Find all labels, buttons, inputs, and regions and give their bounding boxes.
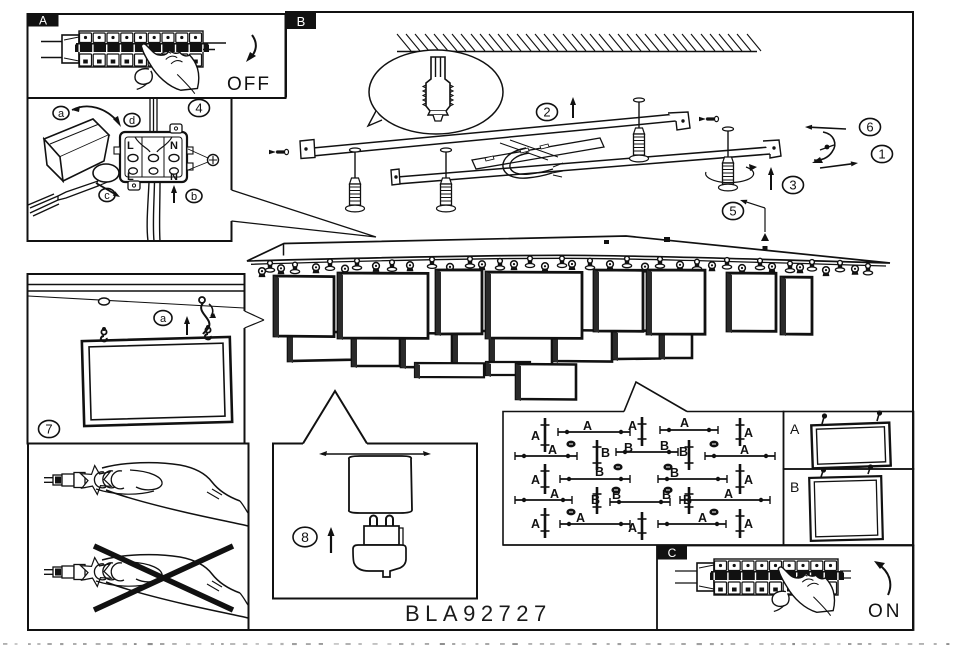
svg-text:B: B	[624, 441, 633, 455]
svg-text:A: A	[740, 443, 749, 457]
svg-text:3: 3	[789, 178, 796, 193]
svg-text:B: B	[790, 479, 799, 495]
svg-text:B: B	[297, 14, 306, 29]
svg-text:A: A	[583, 419, 592, 433]
svg-text:B: B	[595, 465, 604, 479]
svg-text:a: a	[160, 313, 167, 325]
svg-text:2: 2	[543, 105, 550, 120]
svg-text:A: A	[531, 517, 540, 531]
svg-text:a: a	[58, 108, 65, 120]
svg-text:OFF: OFF	[227, 74, 271, 95]
svg-text:A: A	[39, 14, 47, 28]
svg-text:B: B	[660, 439, 669, 453]
svg-text:d: d	[129, 115, 135, 127]
svg-text:B: B	[683, 493, 692, 507]
svg-text:A: A	[680, 416, 689, 430]
svg-text:A: A	[698, 511, 707, 525]
svg-text:b: b	[191, 191, 197, 203]
svg-text:A: A	[548, 443, 557, 457]
svg-text:C: C	[668, 546, 677, 560]
svg-text:N: N	[170, 140, 178, 152]
svg-text:B: B	[679, 445, 688, 459]
svg-text:4: 4	[195, 101, 202, 116]
svg-text:L: L	[127, 140, 134, 152]
svg-text:7: 7	[45, 422, 52, 437]
svg-text:A: A	[744, 517, 753, 531]
svg-text:6: 6	[866, 120, 873, 135]
svg-text:1: 1	[878, 147, 885, 162]
svg-text:8: 8	[301, 529, 309, 545]
svg-text:5: 5	[729, 204, 736, 219]
svg-text:A: A	[531, 429, 540, 443]
svg-text:A: A	[628, 521, 637, 535]
svg-text:A: A	[724, 487, 733, 501]
svg-text:A: A	[790, 421, 800, 437]
svg-text:B: B	[601, 446, 610, 460]
svg-text:BLA92727: BLA92727	[405, 601, 552, 626]
svg-text:A: A	[744, 473, 753, 487]
svg-text:A: A	[576, 511, 585, 525]
svg-text:A: A	[550, 487, 559, 501]
svg-text:ON: ON	[868, 601, 903, 622]
svg-text:A: A	[628, 419, 637, 433]
svg-text:A: A	[744, 426, 753, 440]
svg-text:B: B	[591, 493, 600, 507]
svg-text:A: A	[531, 473, 540, 487]
